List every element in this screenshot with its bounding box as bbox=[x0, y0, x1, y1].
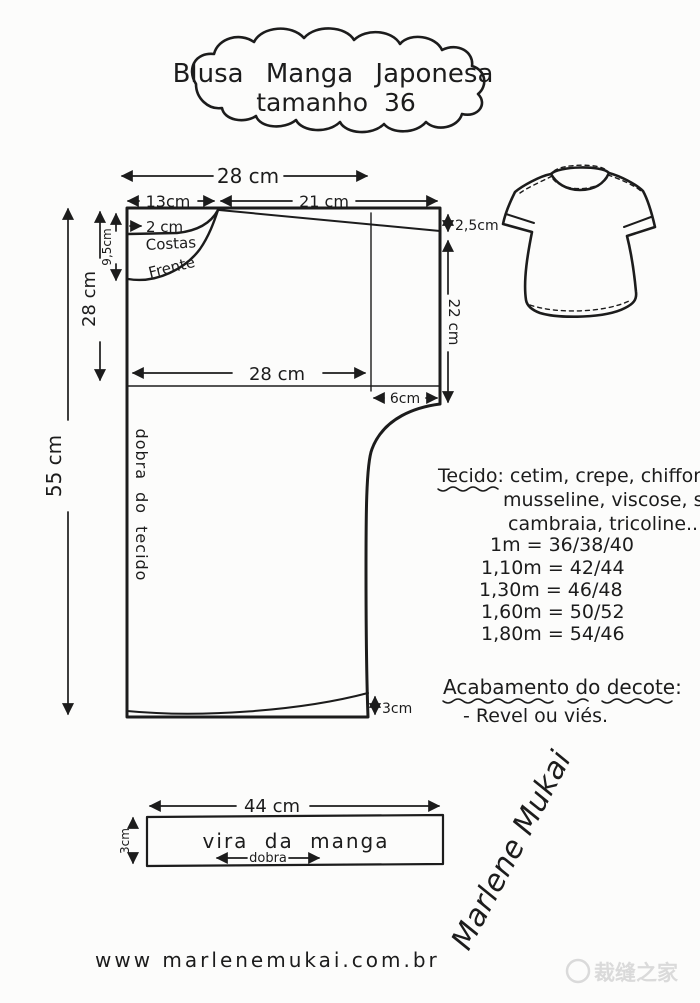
measurement-arrows: 28 cm 13cm 21 cm 2 cm 9,5cm 28 cm 55 cm … bbox=[42, 164, 499, 717]
watermark-logo: 裁缝之家 bbox=[567, 960, 679, 985]
page-title: Blusa Manga Japonesa bbox=[173, 59, 494, 89]
sewing-pattern-sheet: Blusa Manga Japonesa tamanho 36 Costas F… bbox=[0, 0, 700, 1003]
sewing-logo-icon bbox=[567, 960, 589, 982]
yardage-table: 1m = 36/38/40 1,10m = 42/44 1,30m = 46/4… bbox=[479, 534, 634, 645]
fabric-line: Tecido: cetim, crepe, chiffon, bbox=[437, 465, 700, 487]
neckline-finish-note: Acabamento do decote: - Revel ou viés. bbox=[443, 675, 682, 727]
website-url: www marlenemukai.com.br bbox=[95, 948, 440, 972]
title-cloud: Blusa Manga Japonesa tamanho 36 bbox=[173, 28, 494, 132]
website-text: www marlenemukai.com.br bbox=[95, 948, 440, 972]
tshirt-back-neck bbox=[551, 167, 609, 174]
measure-cuff-width: 44 cm bbox=[244, 796, 300, 817]
measure-front-neck-depth: 9,5cm bbox=[100, 228, 114, 265]
tshirt-cuff-lines bbox=[506, 214, 651, 227]
measure-top-width: 28 cm bbox=[217, 164, 279, 188]
measure-side-length: 22 cm bbox=[445, 299, 463, 346]
yardage-row: 1m = 36/38/40 bbox=[490, 534, 634, 556]
measure-underarm-inset: 6cm bbox=[390, 391, 420, 407]
page-subtitle: tamanho 36 bbox=[256, 88, 416, 117]
pattern-drawing: Blusa Manga Japonesa tamanho 36 Costas F… bbox=[0, 0, 700, 1003]
yardage-row: 1,30m = 46/48 bbox=[479, 579, 623, 601]
yardage-row: 1,80m = 54/46 bbox=[481, 623, 625, 645]
yardage-row: 1,60m = 50/52 bbox=[481, 601, 625, 623]
fabric-notes: Tecido: cetim, crepe, chiffon, musseline… bbox=[437, 465, 700, 535]
fabric-line: musseline, viscose, seda, bbox=[503, 489, 700, 511]
finish-item: - Revel ou viés. bbox=[463, 705, 608, 727]
signature-text: Marlene Mukai bbox=[445, 745, 579, 956]
hem-curve bbox=[127, 693, 368, 714]
pattern-outline bbox=[127, 208, 440, 717]
sleeve-hem-fold-line bbox=[219, 210, 440, 231]
measure-back-neck-drop: 2 cm bbox=[146, 218, 183, 236]
measure-total-length: 55 cm bbox=[42, 435, 66, 497]
tshirt-hem-stitching bbox=[530, 301, 629, 311]
yardage-row: 1,10m = 42/44 bbox=[481, 557, 625, 579]
pattern-main-piece: Costas Frente dobra do tecido bbox=[127, 208, 440, 717]
measure-bust-width: 28 cm bbox=[249, 364, 305, 385]
cuff-piece: 44 cm vira da manga dobra 3cm bbox=[118, 796, 443, 866]
measure-sleeve-width: 21 cm bbox=[299, 192, 349, 211]
tshirt-illustration bbox=[503, 165, 655, 316]
fabric-line: cambraia, tricoline... bbox=[508, 513, 700, 535]
tshirt-outline bbox=[503, 173, 655, 317]
measure-cuff-height: 3cm bbox=[118, 828, 132, 854]
cuff-fold-label: dobra bbox=[249, 851, 287, 866]
measure-hem-rise: 3cm bbox=[382, 701, 412, 717]
label-costas: Costas bbox=[145, 233, 196, 254]
measure-sleeve-hem: 2,5cm bbox=[455, 218, 499, 234]
tecido-wavy-underline bbox=[438, 487, 498, 491]
measure-back-width: 13cm bbox=[146, 192, 191, 211]
label-fabric-fold: dobra do tecido bbox=[132, 429, 151, 582]
cuff-label: vira da manga bbox=[203, 829, 390, 853]
measure-left-depth: 28 cm bbox=[79, 271, 100, 327]
finish-wavy-underline bbox=[443, 699, 672, 703]
watermark-text: 裁缝之家 bbox=[594, 961, 679, 985]
label-frente: Frente bbox=[147, 253, 197, 282]
finish-heading: Acabamento do decote: bbox=[443, 675, 682, 699]
signature: Marlene Mukai bbox=[445, 745, 579, 956]
